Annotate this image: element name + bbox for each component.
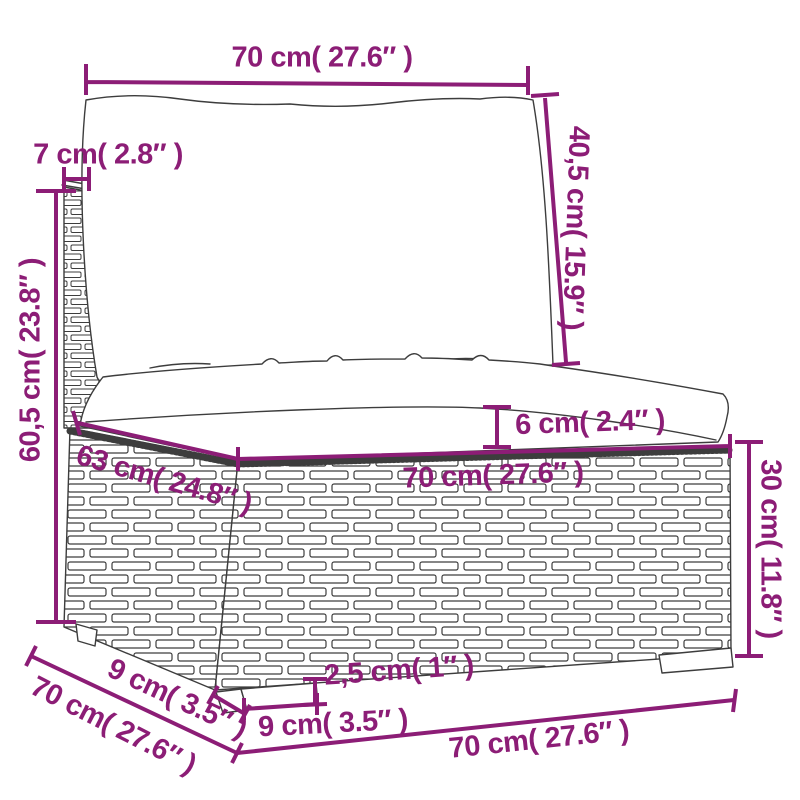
dim-label-back-rail-depth: 7 cm( 2.8″ ) [33, 141, 183, 170]
dim-label-cushion-thickness: 6 cm( 2.4″ ) [515, 406, 666, 440]
dimension-diagram: 70 cm( 27.6″ ) 7 cm( 2.8″ ) 40,5 cm( 15.… [0, 0, 800, 800]
dim-label-base-height: 30 cm( 11.8″ ) [756, 459, 785, 638]
dim-label-total-height: 60,5 cm( 23.8″ ) [17, 258, 46, 462]
dim-label-top-width: 70 cm( 27.6″ ) [232, 44, 413, 73]
dim-label-seat-width: 70 cm( 27.6″ ) [402, 458, 584, 493]
dim-label-back-cushion-height: 40,5 cm( 15.9″ ) [557, 125, 593, 330]
